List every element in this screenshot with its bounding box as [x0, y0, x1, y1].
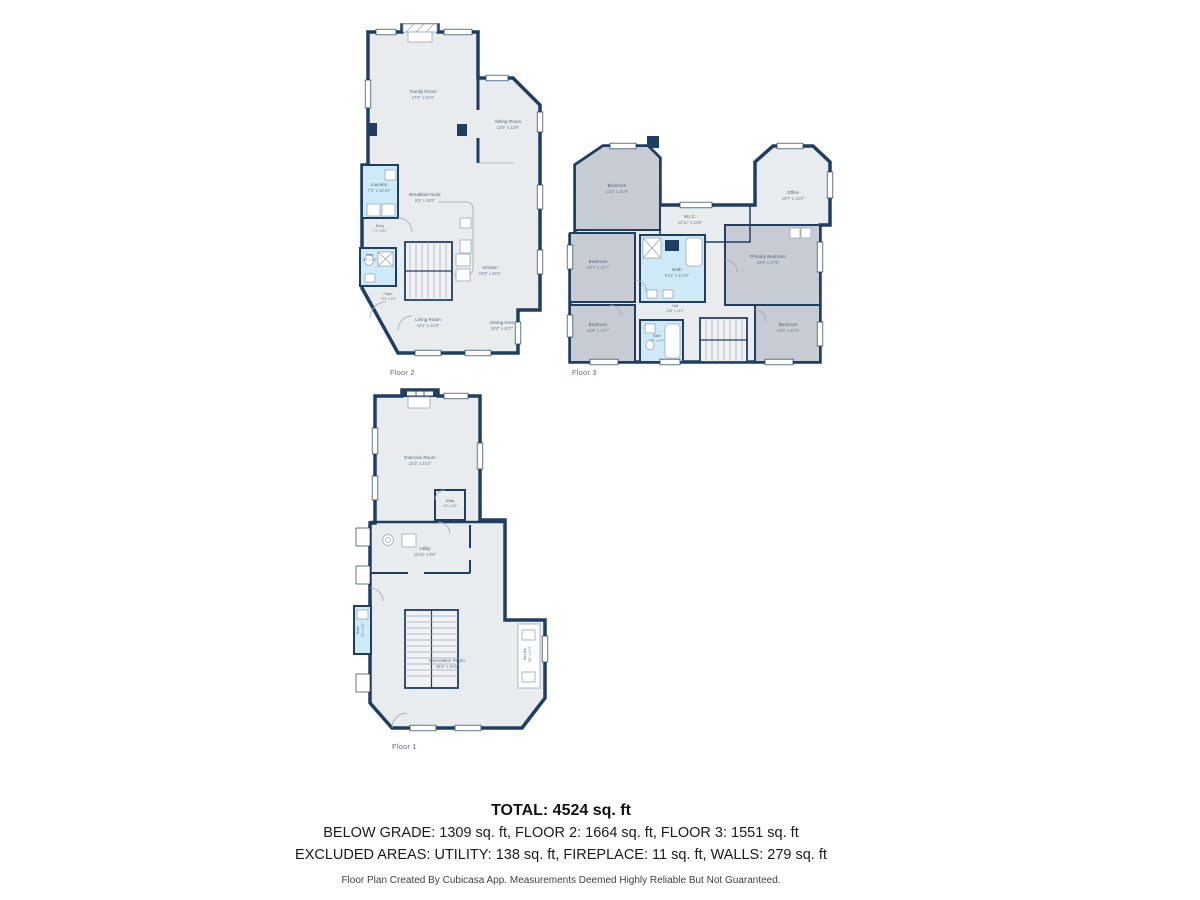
- room-dims-dining-area: 10'0" x 10'7": [491, 326, 514, 331]
- room-label-bath-f2: Bath: [366, 253, 373, 257]
- floor-plan-sheet: Family Room 17'9" x 23'4" Sitting Room 1…: [0, 0, 1200, 900]
- room-label-utility-big: Utility: [419, 546, 431, 551]
- room-dims-foyer: 7'10" x 9'3": [380, 297, 396, 301]
- room-dims-bedroom-br: 12'0" x 10'3": [777, 328, 800, 333]
- room-label-family-room: Family Room: [409, 89, 436, 94]
- room-dims-breakfast-nook: 9'5" x 15'5": [415, 198, 436, 203]
- room-label-utility-small: Utility: [446, 499, 455, 503]
- room-label-office: Office: [787, 190, 799, 195]
- room-dims-entry: 7'7" x 8'1": [373, 229, 387, 233]
- room-dims-wic: 13'11" x 13'9": [678, 220, 703, 225]
- room-dims-bedroom-bl: 13'8" x 10'7": [587, 328, 610, 333]
- room-label-primary-bedroom: Primary Bedroom: [750, 254, 786, 259]
- room-dims-exercise-room: 18'3" x 24'2": [409, 461, 432, 466]
- room-label-dining-area: Dining Area: [490, 320, 514, 325]
- room-dims-bath-small: 2'9" x 6'9": [361, 623, 365, 637]
- room-label-bath-2: Bath: [653, 334, 660, 338]
- room-dims-bedroom-tl: 13'4" x 15'9": [606, 189, 629, 194]
- room-label-recreation-room: Recreation Room: [429, 658, 465, 663]
- room-dims-bedroom-ml: 10'7" x 11'7": [587, 265, 610, 270]
- by-floor-area-text: BELOW GRADE: 1309 sq. ft, FLOOR 2: 1664 …: [161, 822, 961, 844]
- room-label-laundry: Laundry: [371, 182, 388, 187]
- room-dims-hall: 22'8" x 15'2": [666, 309, 683, 313]
- floor-2-caption: Floor 2: [390, 368, 415, 377]
- bath-room: [360, 248, 396, 286]
- floor-3-plan: Bedroom 13'4" x 15'9" Office 13'7" x 13'…: [565, 130, 835, 380]
- room-dims-sitting-room: 13'9" x 13'9": [497, 125, 520, 130]
- room-dims-recreation-room: 28'5" x 33'5": [436, 664, 459, 669]
- total-area-text: TOTAL: 4524 sq. ft: [161, 800, 961, 822]
- room-dims-bath-f2: 4'9" x 5'3": [363, 258, 377, 262]
- room-dims-living-room: 13'4" x 14'3": [417, 323, 440, 328]
- floor-1-caption: Floor 1: [392, 742, 417, 751]
- room-dims-laundry: 7'3" x 10'10": [368, 188, 391, 193]
- room-label-breakfast-nook: Breakfast Nook: [409, 192, 441, 197]
- floor-3-caption: Floor 3: [572, 368, 597, 377]
- room-label-living-room: Living Room: [415, 317, 441, 322]
- room-label-wet-bar: Wet Bar: [523, 647, 527, 660]
- stairs: [405, 242, 452, 300]
- floor-1-plan: Exercise Room 18'3" x 24'2" Utility 4'4"…: [350, 388, 550, 750]
- room-dims-bath-1: 8'11" x 11'10": [665, 273, 690, 278]
- room-label-bath-small: Bath: [356, 626, 360, 633]
- room-label-bedroom-tl: Bedroom: [608, 183, 627, 188]
- stairs: [700, 318, 747, 362]
- area-summary: TOTAL: 4524 sq. ft BELOW GRADE: 1309 sq.…: [161, 800, 961, 886]
- floor-2-plan: Family Room 17'9" x 23'4" Sitting Room 1…: [340, 20, 560, 380]
- stairs: [405, 610, 458, 688]
- room-label-exercise-room: Exercise Room: [404, 455, 435, 460]
- room-dims-utility-big: 16'11" x 8'6": [414, 552, 437, 557]
- room-label-kitchen: Kitchen: [482, 265, 498, 270]
- room-label-wic: W.I.C.: [684, 214, 697, 219]
- room-dims-bath-2: 7'0" x 7'0": [650, 339, 664, 343]
- room-dims-wet-bar: 8'0" x 13'3": [528, 646, 532, 662]
- room-dims-office: 13'7" x 13'2": [782, 196, 805, 201]
- room-label-bedroom-bl: Bedroom: [589, 322, 608, 327]
- room-label-bedroom-br: Bedroom: [779, 322, 798, 327]
- disclaimer-text: Floor Plan Created By Cubicasa App. Meas…: [161, 875, 961, 886]
- room-dims-primary-bedroom: 22'9" x 17'8": [757, 260, 780, 265]
- room-label-sitting-room: Sitting Room: [495, 119, 521, 124]
- room-label-entry: Entry: [376, 224, 384, 228]
- room-label-bedroom-ml: Bedroom: [589, 259, 608, 264]
- excluded-area-text: EXCLUDED AREAS: UTILITY: 138 sq. ft, FIR…: [161, 844, 961, 866]
- room-label-foyer: Foyer: [384, 292, 394, 296]
- room-label-hall: Hall: [672, 304, 678, 308]
- room-dims-kitchen: 15'5" x 26'1": [479, 271, 502, 276]
- room-label-bath-1: Bath: [672, 267, 682, 272]
- room-dims-family-room: 17'9" x 23'4": [412, 95, 435, 100]
- room-dims-utility-small: 4'4" x 4'6": [443, 504, 457, 508]
